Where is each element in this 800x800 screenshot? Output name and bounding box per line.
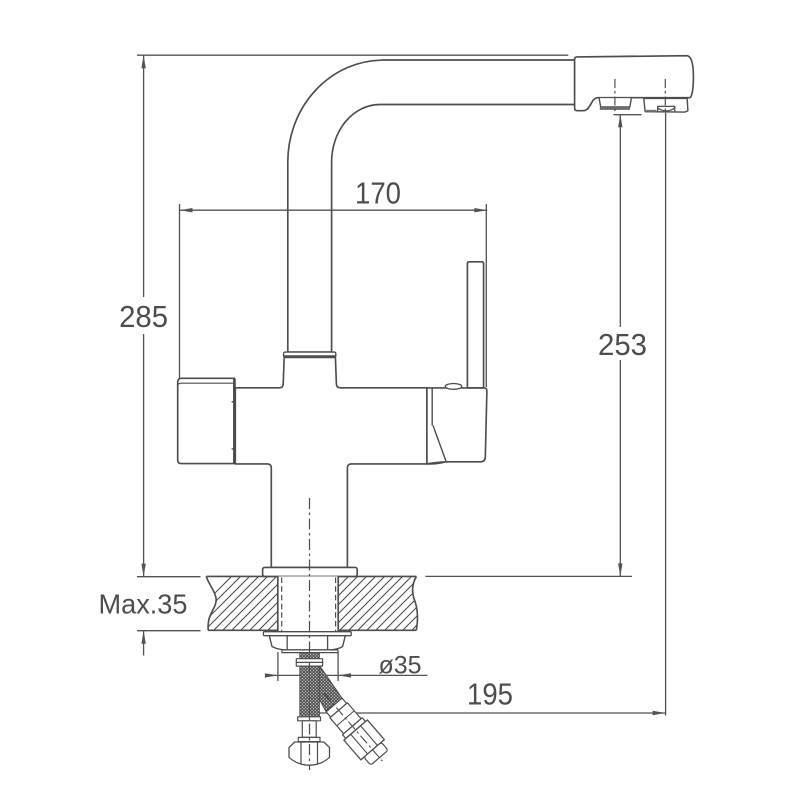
svg-text:170: 170 bbox=[355, 176, 401, 211]
svg-text:ø35: ø35 bbox=[379, 652, 422, 680]
svg-text:195: 195 bbox=[467, 677, 513, 712]
svg-text:253: 253 bbox=[598, 327, 647, 362]
svg-text:Max.35: Max.35 bbox=[99, 589, 188, 620]
svg-text:285: 285 bbox=[119, 299, 168, 334]
